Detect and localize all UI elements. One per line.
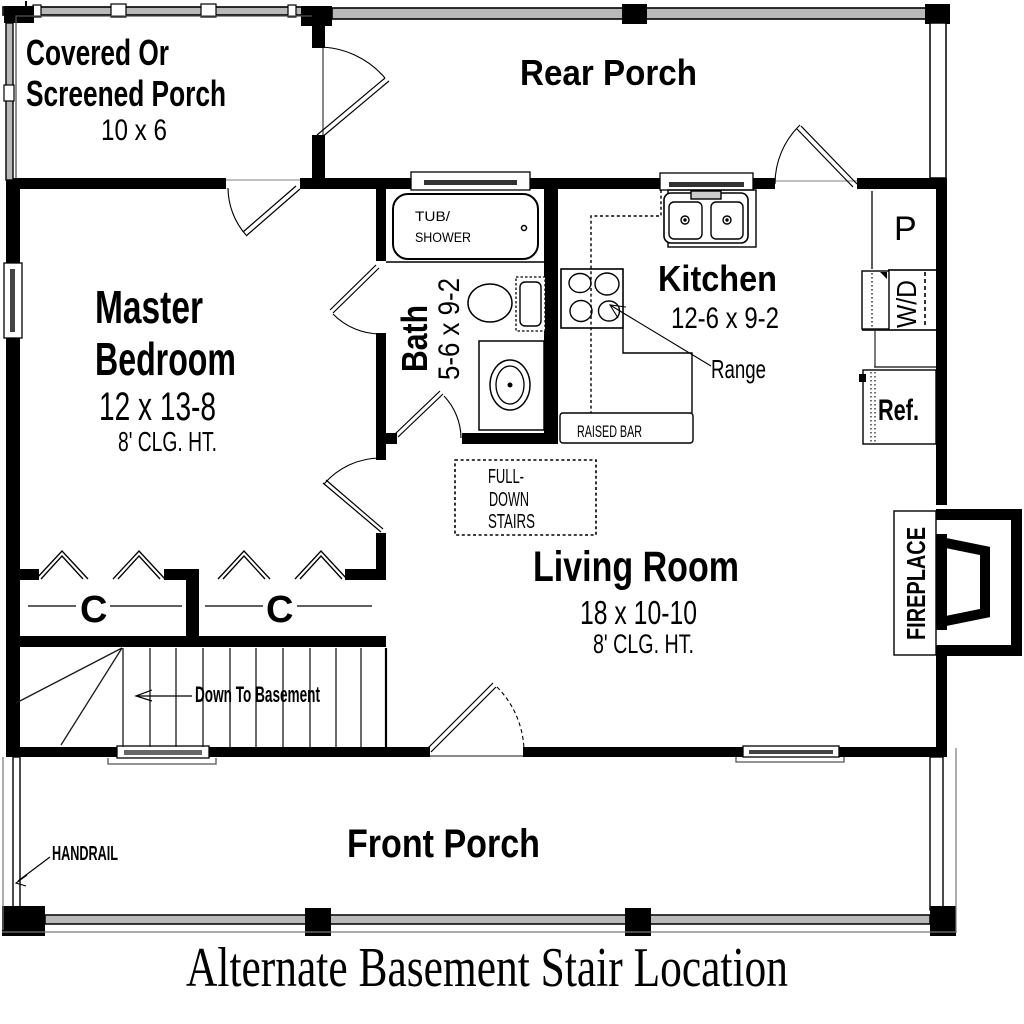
svg-text:Ref.: Ref. (878, 394, 919, 427)
svg-text:Rear Porch: Rear Porch (520, 52, 697, 93)
svg-text:10 x 6: 10 x 6 (101, 114, 167, 147)
svg-text:12 x 13-8: 12 x 13-8 (99, 385, 216, 429)
svg-text:Kitchen: Kitchen (658, 258, 777, 299)
svg-text:8' CLG. HT.: 8' CLG. HT. (118, 426, 217, 457)
svg-text:Screened Porch: Screened Porch (26, 73, 226, 114)
svg-text:12-6 x 9-2: 12-6 x 9-2 (671, 302, 779, 335)
svg-text:Front Porch: Front Porch (347, 822, 540, 866)
svg-text:Covered Or: Covered Or (26, 32, 169, 73)
svg-text:FULL-: FULL- (488, 466, 524, 488)
svg-text:Living Room: Living Room (533, 543, 739, 591)
svg-text:RAISED BAR: RAISED BAR (577, 422, 642, 441)
svg-text:C: C (266, 589, 293, 631)
svg-text:SHOWER: SHOWER (415, 230, 471, 245)
svg-text:Range: Range (711, 354, 766, 384)
svg-text:Bedroom: Bedroom (95, 333, 236, 385)
svg-text:FIREPLACE: FIREPLACE (901, 527, 931, 640)
svg-text:P: P (894, 210, 917, 248)
svg-text:Bath: Bath (394, 305, 435, 372)
svg-text:DOWN: DOWN (489, 489, 529, 511)
svg-text:TUB/: TUB/ (415, 209, 450, 224)
svg-text:5-6 x 9-2: 5-6 x 9-2 (433, 278, 466, 380)
svg-text:8' CLG. HT.: 8' CLG. HT. (593, 629, 694, 659)
svg-text:W/D: W/D (891, 280, 922, 328)
svg-text:18 x 10-10: 18 x 10-10 (580, 594, 697, 631)
svg-text:Alternate Basement Stair Locat: Alternate Basement Stair Location (186, 937, 788, 999)
svg-text:C: C (80, 589, 107, 631)
svg-text:HANDRAIL: HANDRAIL (52, 843, 118, 865)
svg-text:STAIRS: STAIRS (488, 511, 535, 533)
svg-text:Down To Basement: Down To Basement (195, 682, 320, 707)
svg-text:Master: Master (95, 281, 203, 333)
